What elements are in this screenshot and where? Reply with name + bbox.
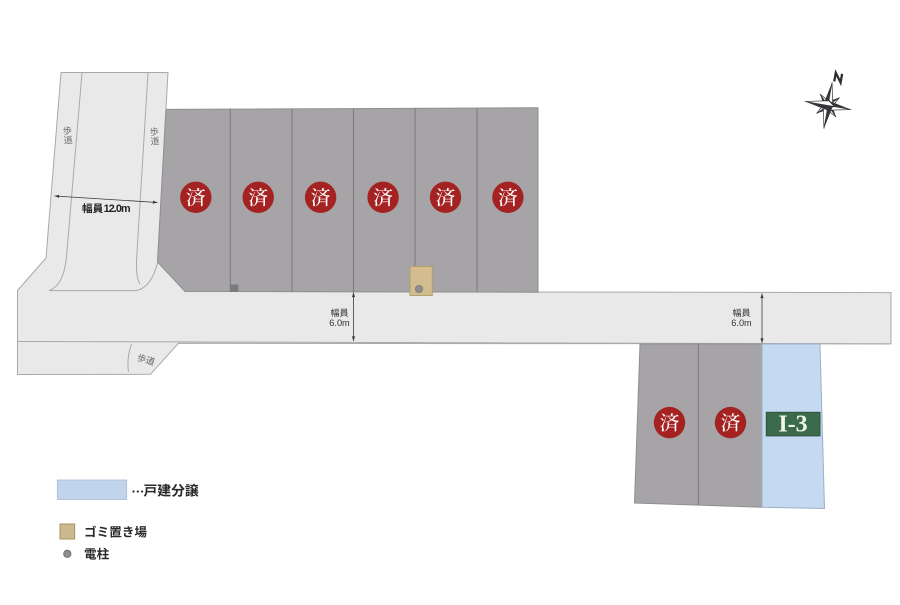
svg-text:6.0m: 6.0m — [329, 318, 350, 328]
svg-text:12.0m: 12.0m — [104, 203, 131, 215]
svg-text:6.0m: 6.0m — [731, 318, 752, 328]
svg-text:I-3: I-3 — [778, 412, 807, 438]
